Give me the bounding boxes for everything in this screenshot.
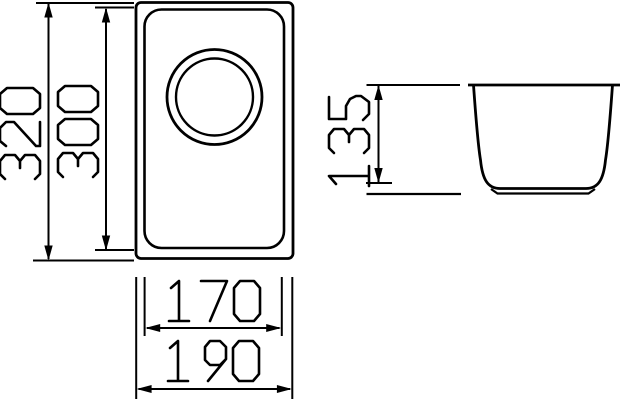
arrowhead-right-icon: [266, 324, 281, 332]
dim-overall-length-label: [0, 88, 40, 179]
arrowhead-up-icon: [44, 3, 52, 18]
sink-dimension-drawing: [0, 0, 623, 400]
sink-side-view: [468, 85, 620, 194]
sink-top-view: [136, 3, 293, 259]
arrowhead-down-icon: [102, 236, 110, 251]
dimension-bowl-depth: [329, 85, 461, 194]
technical-drawing-canvas: [0, 0, 623, 400]
arrowhead-left-icon: [137, 385, 152, 393]
drain-inner-circle: [176, 59, 253, 136]
side-view-bowl-profile: [474, 85, 613, 189]
top-view-bowl-outline: [145, 10, 285, 249]
top-view-outer-outline: [136, 3, 293, 259]
arrowhead-down-icon: [374, 168, 382, 183]
dimension-bowl-length: [58, 8, 134, 251]
arrowhead-up-icon: [102, 8, 110, 23]
dim-overall-width-label: [168, 341, 259, 381]
dim-bowl-width-label: [169, 281, 260, 321]
dim-bowl-depth-label: [329, 96, 369, 186]
arrowhead-up-icon: [374, 85, 382, 100]
arrowhead-right-icon: [277, 385, 292, 393]
dim-bowl-length-label: [58, 86, 98, 177]
drain-outer-circle: [167, 50, 262, 145]
dimension-bowl-width: [145, 277, 282, 336]
arrowhead-left-icon: [145, 324, 160, 332]
arrowhead-down-icon: [44, 246, 52, 261]
dimension-overall-length: [0, 3, 134, 261]
dimension-overall-width: [136, 277, 292, 399]
